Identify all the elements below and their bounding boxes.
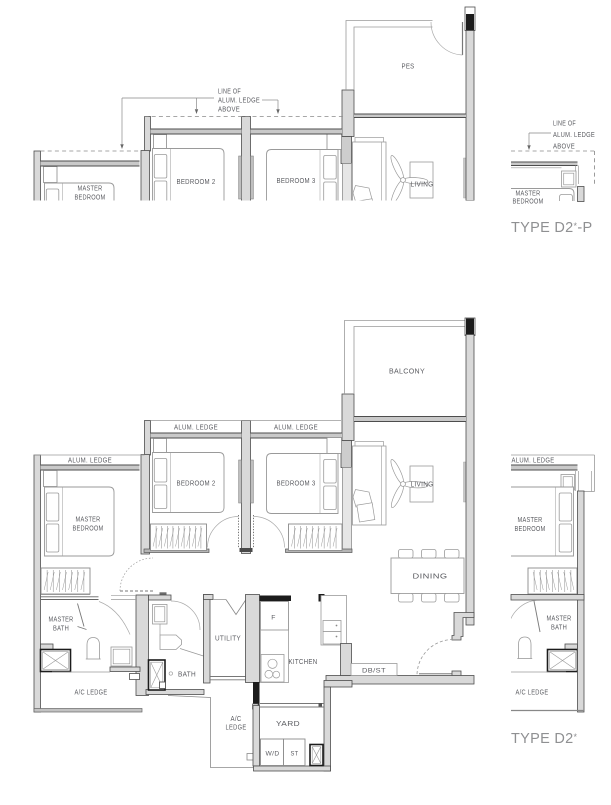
svg-text:A/C: A/C [231,716,242,723]
svg-text:ALUM. LEDGE: ALUM. LEDGE [512,458,555,465]
svg-text:LEDGE: LEDGE [226,725,247,732]
svg-text:BEDROOM: BEDROOM [515,524,546,533]
svg-text:BEDROOM 3: BEDROOM 3 [277,176,316,185]
svg-text:W/D: W/D [266,751,280,758]
svg-text:UTILITY: UTILITY [215,634,241,643]
svg-text:ALUM. LEDGE: ALUM. LEDGE [553,130,595,139]
svg-text:LINE OF: LINE OF [553,119,576,128]
svg-text:BALCONY: BALCONY [389,367,425,376]
svg-text:LIVING: LIVING [411,480,434,489]
svg-text:LINE OF: LINE OF [218,87,241,96]
svg-text:ABOVE: ABOVE [218,105,240,114]
svg-text:BEDROOM 2: BEDROOM 2 [177,479,216,488]
svg-text:MASTER: MASTER [78,184,103,193]
svg-text:ALUM. LEDGE: ALUM. LEDGE [68,458,112,465]
svg-text:ALUM. LEDGE: ALUM. LEDGE [174,425,218,432]
svg-text:BATH: BATH [53,624,69,633]
svg-text:BEDROOM 3: BEDROOM 3 [277,479,316,488]
svg-text:TYPE D2*: TYPE D2* [511,731,578,747]
svg-text:MASTER: MASTER [547,614,572,623]
svg-text:PES: PES [402,62,415,71]
svg-text:BEDROOM 2: BEDROOM 2 [177,177,216,186]
svg-text:BEDROOM: BEDROOM [75,193,106,202]
svg-text:KITCHEN: KITCHEN [289,657,318,666]
svg-text:ALUM. LEDGE: ALUM. LEDGE [274,425,318,432]
svg-text:DINING: DINING [413,572,448,581]
svg-text:DB/ST: DB/ST [362,668,386,675]
svg-text:F: F [271,615,276,622]
svg-text:MASTER: MASTER [518,515,543,524]
svg-text:BEDROOM: BEDROOM [73,524,104,533]
svg-text:MASTER: MASTER [49,615,74,624]
svg-text:ALUM. LEDGE: ALUM. LEDGE [218,96,260,105]
svg-text:A/C LEDGE: A/C LEDGE [516,690,549,697]
svg-text:YARD: YARD [276,719,300,728]
svg-text:A/C LEDGE: A/C LEDGE [75,690,108,697]
svg-text:LIVING: LIVING [411,180,434,189]
svg-text:BATH: BATH [551,623,567,632]
svg-text:BEDROOM: BEDROOM [513,197,544,206]
svg-text:ABOVE: ABOVE [553,142,575,151]
svg-text:ST: ST [291,751,299,758]
svg-text:BATH: BATH [178,670,196,679]
svg-text:TYPE D2*-P: TYPE D2*-P [511,220,592,236]
svg-text:MASTER: MASTER [76,515,101,524]
